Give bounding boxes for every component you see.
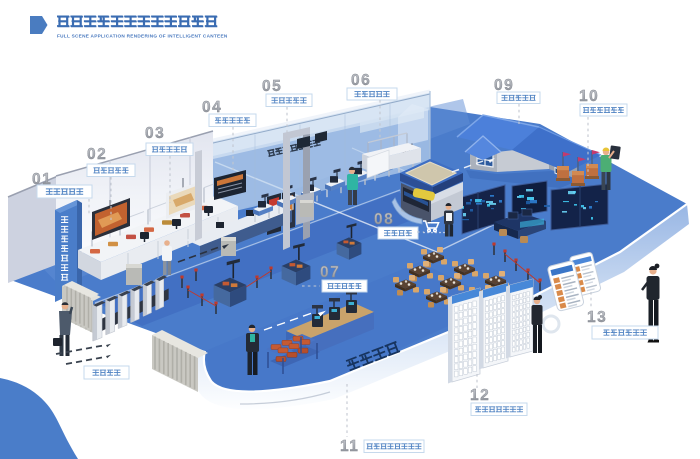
svg-text:08: 08: [374, 211, 394, 228]
svg-text:07: 07: [320, 264, 340, 281]
svg-text:09: 09: [494, 77, 514, 94]
svg-text:FULL SCENE APPLICATION RENDERI: FULL SCENE APPLICATION RENDERING OF INTE…: [57, 34, 228, 39]
svg-text:02: 02: [87, 146, 107, 163]
svg-text:06: 06: [351, 72, 371, 89]
svg-text:04: 04: [202, 99, 222, 116]
svg-text:12: 12: [470, 387, 490, 404]
svg-text:05: 05: [262, 78, 282, 95]
svg-text:03: 03: [145, 125, 165, 142]
svg-text:13: 13: [587, 309, 607, 326]
svg-text:10: 10: [579, 88, 599, 105]
svg-text:11: 11: [340, 438, 359, 455]
